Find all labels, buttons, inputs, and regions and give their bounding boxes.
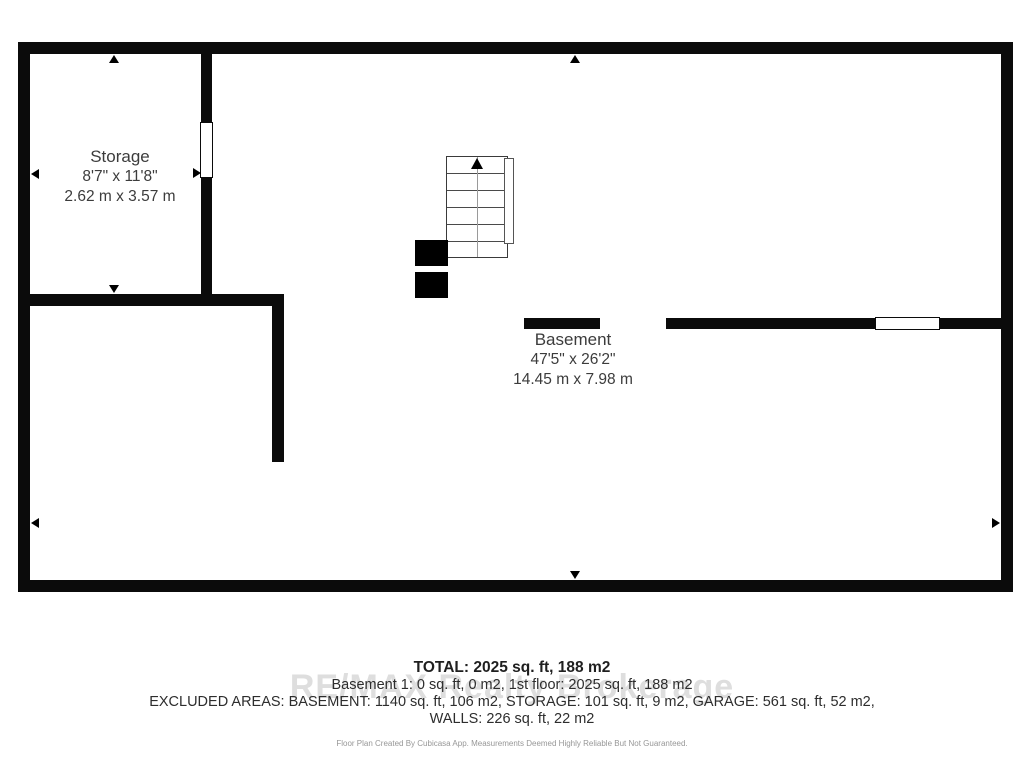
staircase [446,156,508,258]
outer-wall-bottom [18,580,1013,592]
outer-wall-left [18,42,30,592]
lower-left-wall-horizontal [18,294,280,306]
storage-dim-up-arrow-icon [109,55,119,63]
floor-plan-page: Storage 8'7" x 11'8" 2.62 m x 3.57 m Bas… [0,0,1024,759]
stairs-up-arrow-icon [471,158,483,169]
outer-wall-top [18,42,1013,54]
basement-dims-metric: 14.45 m x 7.98 m [443,370,703,390]
basement-dim-right-arrow-icon [992,518,1000,528]
basement-dim-left-arrow-icon [31,518,39,528]
walls-area-line: WALLS: 226 sq. ft, 22 m2 [0,711,1024,728]
stair-center-line [477,157,478,257]
basement-wall-segment-2 [666,318,875,329]
basement-wall-segment-3 [940,318,1001,329]
storage-dims-imperial: 8'7" x 11'8" [30,167,210,187]
basement-room-name: Basement [443,329,703,350]
basement-dim-down-arrow-icon [570,571,580,579]
structural-post [415,240,448,266]
basement-window [875,317,940,330]
excluded-areas-line: EXCLUDED AREAS: BASEMENT: 1140 sq. ft, 1… [0,694,1024,711]
storage-wall-upper [201,42,212,122]
storage-dims-metric: 2.62 m x 3.57 m [30,187,210,207]
floors-area-line: Basement 1: 0 sq. ft, 0 m2, 1st floor: 2… [0,677,1024,694]
storage-dim-down-arrow-icon [109,285,119,293]
total-area-line: TOTAL: 2025 sq. ft, 188 m2 [0,659,1024,677]
storage-room-label: Storage 8'7" x 11'8" 2.62 m x 3.57 m [30,146,210,207]
basement-wall-segment-1 [524,318,600,329]
basement-dims-imperial: 47'5" x 26'2" [443,350,703,370]
basement-dim-up-arrow-icon [570,55,580,63]
lower-left-wall-vertical [272,294,284,462]
outer-wall-right [1001,42,1013,592]
area-summary: TOTAL: 2025 sq. ft, 188 m2 Basement 1: 0… [0,659,1024,748]
storage-room-name: Storage [30,146,210,167]
basement-room-label: Basement 47'5" x 26'2" 14.45 m x 7.98 m [443,329,703,390]
stair-handrail [504,158,514,244]
cubicasa-disclaimer: Floor Plan Created By Cubicasa App. Meas… [0,739,1024,748]
structural-post [415,272,448,298]
